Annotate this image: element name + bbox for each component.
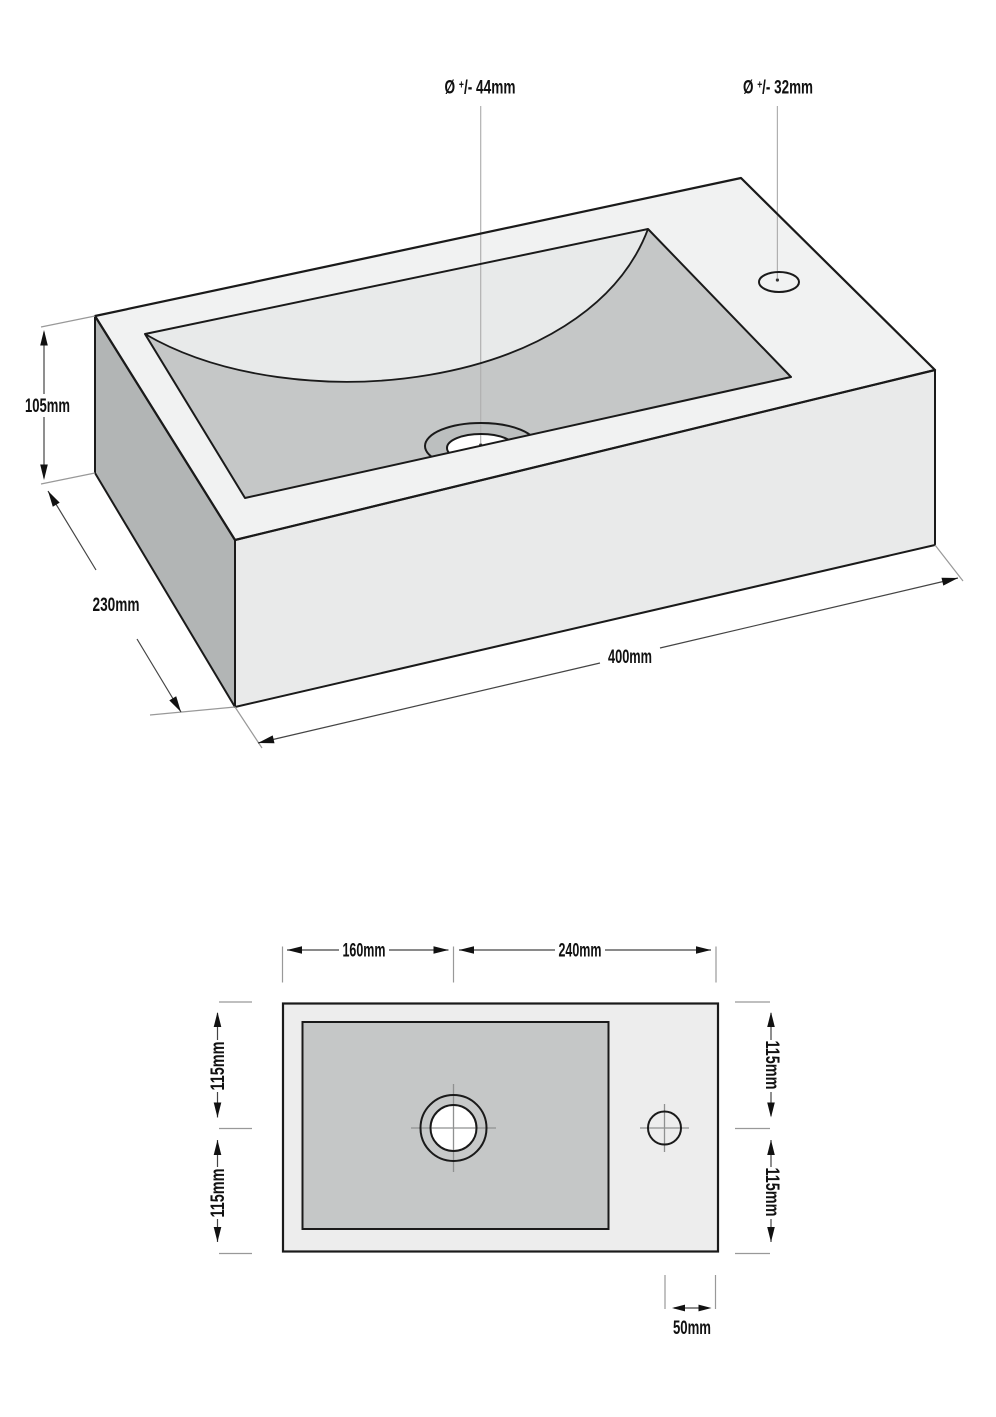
svg-text:400mm: 400mm: [608, 647, 652, 668]
svg-text:50mm: 50mm: [673, 1318, 711, 1339]
svg-text:115mm: 115mm: [208, 1042, 229, 1091]
svg-text:115mm: 115mm: [761, 1041, 782, 1090]
svg-text:230mm: 230mm: [93, 595, 140, 616]
svg-text:Ø +/- 32mm: Ø +/- 32mm: [743, 78, 813, 99]
svg-text:160mm: 160mm: [343, 941, 386, 962]
svg-text:105mm: 105mm: [25, 396, 70, 417]
svg-text:240mm: 240mm: [559, 941, 602, 962]
svg-text:115mm: 115mm: [761, 1168, 782, 1217]
svg-text:Ø +/- 44mm: Ø +/- 44mm: [445, 78, 516, 99]
svg-text:115mm: 115mm: [208, 1169, 229, 1218]
